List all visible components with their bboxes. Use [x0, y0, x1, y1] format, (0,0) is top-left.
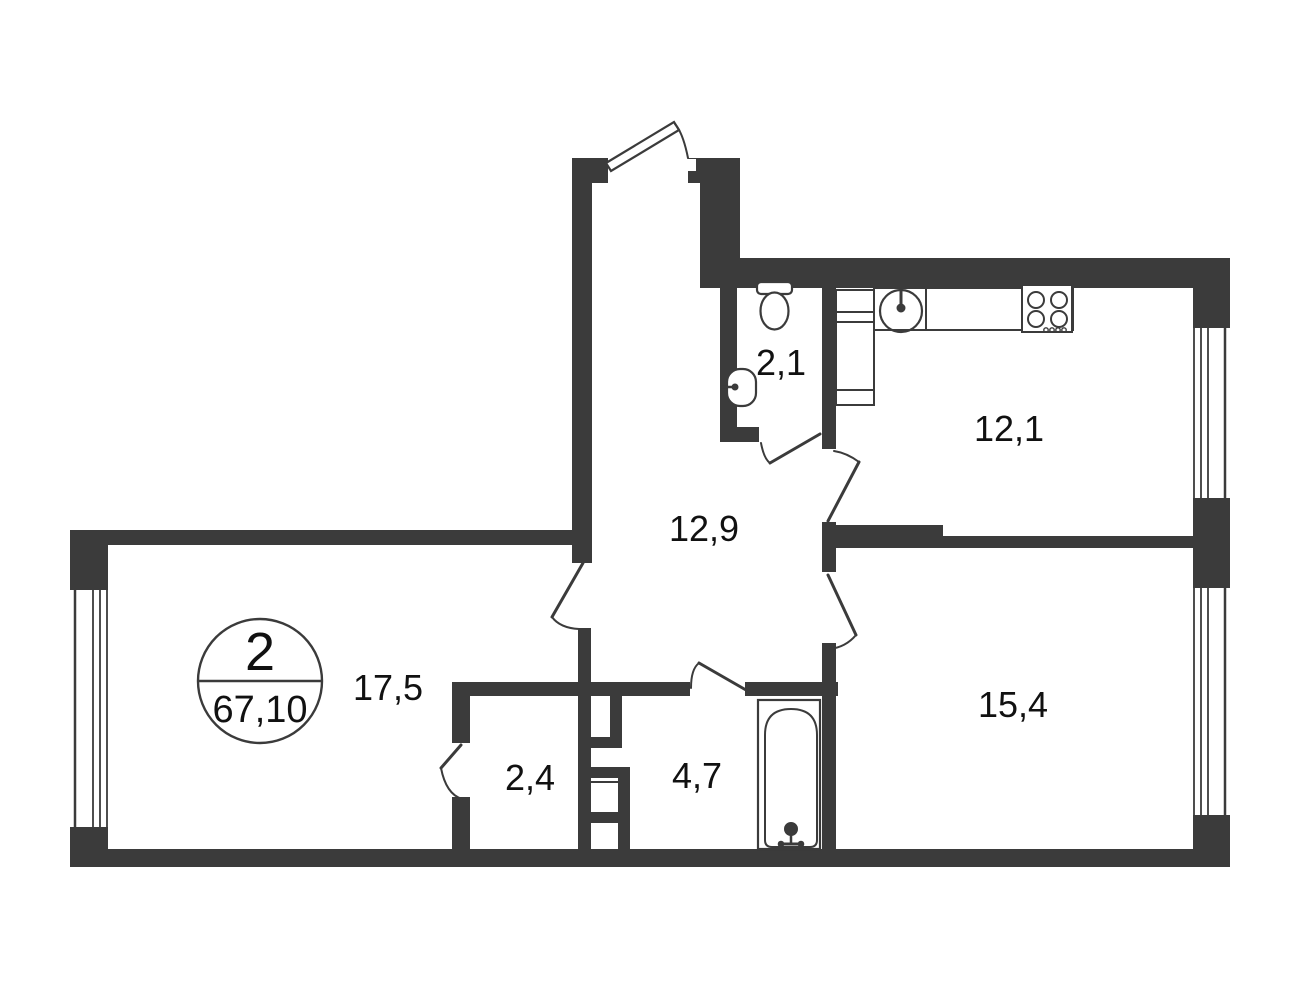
wall-storage-left-top [452, 682, 470, 743]
bathtub-icon [758, 700, 820, 849]
wall-corridor-right [700, 158, 740, 288]
room-label-storage: 2,4 [505, 757, 555, 798]
wall-kitchen-bedroom-thin [943, 536, 1193, 548]
wall-right-seg1 [1193, 258, 1230, 328]
storage-door-leaf [441, 745, 461, 768]
toilet-icon [757, 282, 792, 330]
walls [70, 158, 1230, 867]
window-living-room [75, 590, 107, 827]
wall-right-seg2 [1193, 498, 1230, 588]
room-label-kitchen: 12,1 [974, 408, 1044, 449]
bedroom-door-leaf [828, 575, 856, 635]
plan-summary-badge: 2 67,10 [198, 619, 322, 743]
kitchen-cabinet-icon [836, 290, 874, 405]
toilet-room-door-arc [761, 443, 770, 463]
room-label-bedroom: 15,4 [978, 684, 1048, 725]
wall-bottom [73, 849, 1230, 867]
window-kitchen [1194, 328, 1225, 498]
kitchen-door-leaf [828, 462, 859, 521]
wall-storage-top [452, 682, 578, 696]
storage-door [441, 745, 462, 799]
living-room-door-leaf [552, 563, 583, 617]
wall-bath-right [822, 643, 836, 849]
window-bedroom [1194, 588, 1225, 815]
wall-hall-mid-block [822, 522, 836, 572]
kitchen-door [828, 451, 859, 521]
windows [75, 328, 1225, 827]
toilet-room-door [761, 434, 820, 463]
bedroom-door [828, 575, 856, 649]
shaft-bar-b [583, 737, 622, 748]
kitchen-door-arc [834, 451, 859, 462]
doors [441, 122, 859, 799]
wall-storage-left-bottom [452, 797, 470, 849]
total-area-label: 67,10 [212, 689, 307, 731]
wall-corridor-left [572, 158, 592, 563]
shaft-bar-d [590, 812, 622, 823]
rooms-count-label: 2 [245, 622, 275, 682]
stove-icon [1022, 285, 1072, 332]
entry-jamb-left [572, 158, 608, 183]
wall-wc-kitchen [822, 288, 836, 449]
wall-bath-top-right [745, 682, 838, 696]
bathroom-door-leaf [699, 663, 746, 690]
wall-left-pier-bottom [70, 827, 108, 867]
entrance-door-leaf [606, 122, 679, 171]
entrance-door [606, 122, 688, 171]
room-label-toilet: 2,1 [756, 342, 806, 383]
wall-wc-left [720, 288, 737, 442]
bathroom-door [691, 663, 746, 690]
toilet-room-door-leaf [770, 434, 820, 463]
wall-kitchen-bedroom-thick [836, 525, 943, 548]
floor-plan-drawing: 2 67,10 2,1 12,1 12,9 17,5 2,4 4,7 15,4 [0, 0, 1300, 1000]
room-label-bathroom: 4,7 [672, 755, 722, 796]
wall-wc-bottom-stub [720, 427, 759, 442]
room-label-living-room: 17,5 [353, 667, 423, 708]
bathroom-door-arc [691, 663, 699, 688]
wall-bath-top-left [590, 682, 690, 696]
floor-plan: 2 67,10 2,1 12,1 12,9 17,5 2,4 4,7 15,4 [0, 0, 1300, 1000]
entry-strike-notch [688, 159, 696, 171]
room-label-hallway: 12,9 [669, 508, 739, 549]
wall-living-top [70, 530, 572, 545]
shaft-bar-e [618, 767, 630, 849]
storage-door-arc [441, 768, 462, 799]
living-room-door [552, 563, 583, 629]
living-room-door-arc [552, 617, 579, 629]
